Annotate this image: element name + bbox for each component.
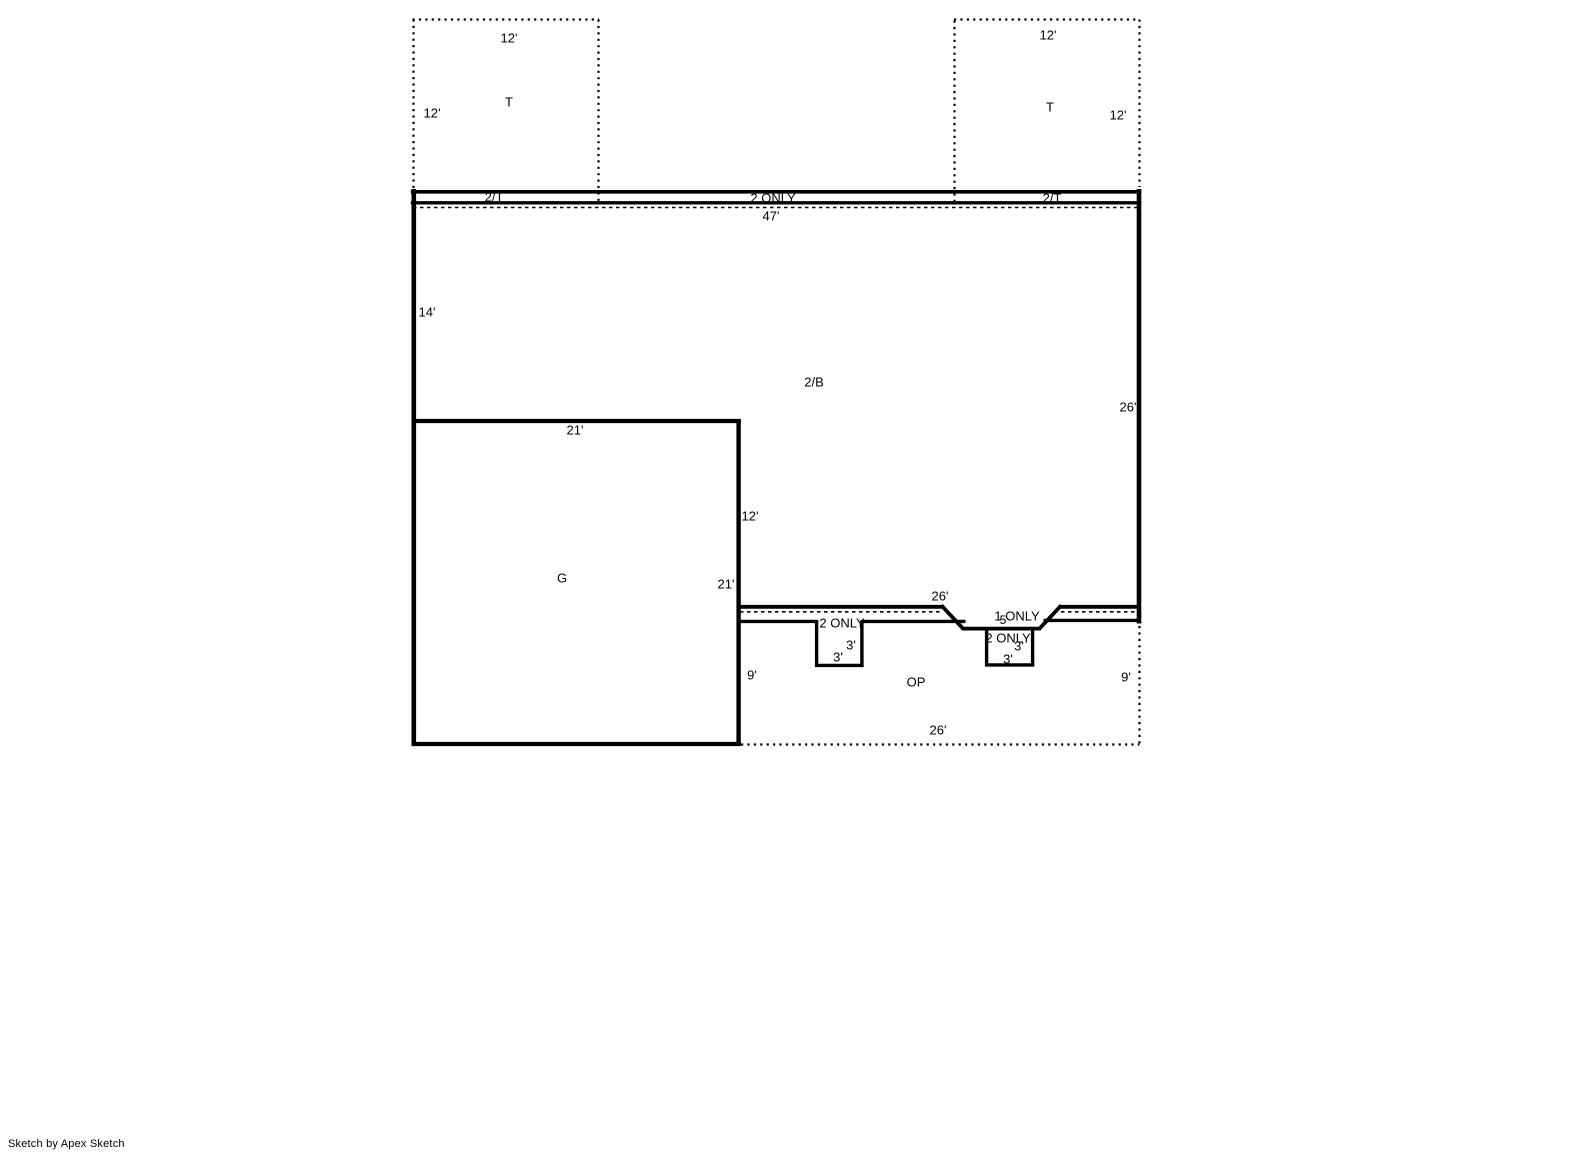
dim-21-g-right: 21' [718, 578, 735, 591]
dim-5: 5 [1000, 614, 1007, 626]
dim-47: 47' [763, 210, 780, 223]
dim-12-g-right: 12' [742, 510, 759, 523]
area-2t-right: 2/T [1043, 192, 1062, 205]
dim-9-left: 9' [747, 669, 757, 682]
watermark-text: Sketch by Apex Sketch [8, 1138, 125, 1150]
dim-21-g-top: 21' [567, 424, 584, 437]
dim-3-notch1-b: 3' [833, 651, 843, 664]
dim-12-top-left-box: 12' [501, 32, 518, 45]
bay-diagonal-right [1039, 605, 1061, 629]
dim-26-right: 26' [1120, 401, 1137, 414]
area-t-left: T [505, 96, 513, 109]
dim-3-notch2-a: 3' [1014, 640, 1024, 653]
dim-12-right-box-side: 12' [1110, 109, 1127, 122]
floorplan-canvas: 12'T12'12'T12'2/T2 ONLY2/T47'14'2/B26'21… [0, 0, 1585, 1163]
dim-26-south-top: 26' [932, 590, 949, 603]
area-2t-left: 2/T [485, 191, 504, 204]
dim-3-notch2-b: 3' [1003, 653, 1013, 666]
dim-26-op-bottom: 26' [930, 724, 947, 737]
dim-14: 14' [419, 306, 436, 319]
dim-3-notch1-a: 3' [846, 639, 856, 652]
bay-diagonal-left [941, 605, 963, 629]
area-2-only-strip: 2 ONLY [750, 192, 795, 205]
floorplan-lines [0, 0, 1585, 1163]
area-2-only-notch1: 2 ONLY [819, 617, 864, 630]
dim-9-right: 9' [1121, 671, 1131, 684]
area-t-right: T [1046, 101, 1054, 114]
area-2b: 2/B [804, 376, 824, 389]
dim-12-top-right-box: 12' [1040, 29, 1057, 42]
area-op: OP [907, 676, 926, 689]
dim-12-left-box-side: 12' [424, 107, 441, 120]
area-g: G [557, 572, 567, 585]
